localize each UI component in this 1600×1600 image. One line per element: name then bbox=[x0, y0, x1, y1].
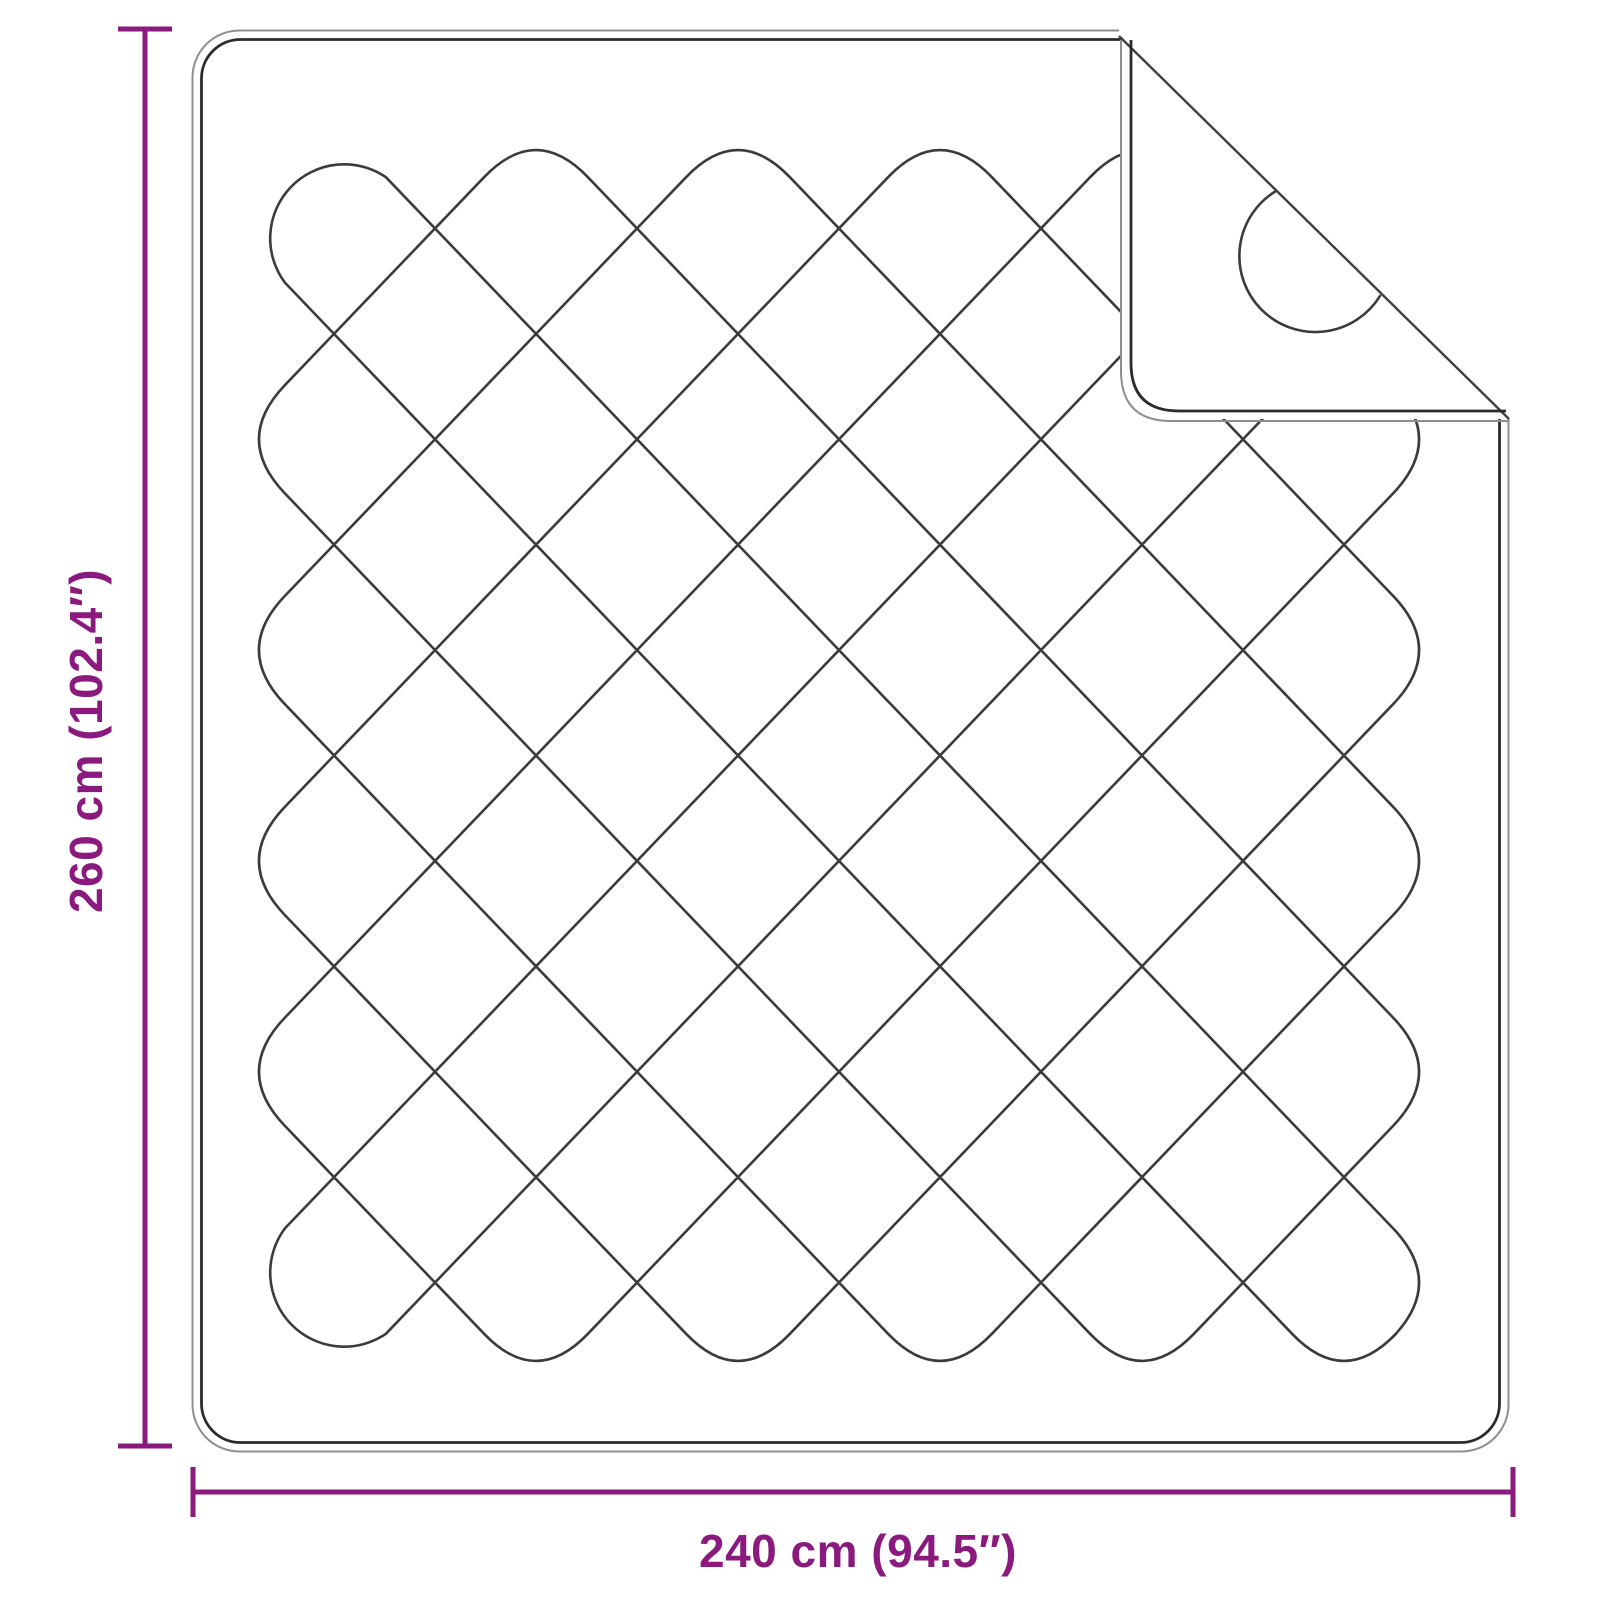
diagram-canvas: 260 cm (102.4″) 240 cm (94.5″) bbox=[0, 0, 1600, 1600]
height-dimension: 260 cm (102.4″) bbox=[60, 29, 172, 1446]
height-label: 260 cm (102.4″) bbox=[60, 569, 112, 913]
width-dimension: 240 cm (94.5″) bbox=[193, 1467, 1513, 1577]
blanket-dimension-diagram: 260 cm (102.4″) 240 cm (94.5″) bbox=[0, 0, 1600, 1600]
width-label: 240 cm (94.5″) bbox=[699, 1525, 1017, 1577]
folded-corner bbox=[1119, 34, 1509, 421]
